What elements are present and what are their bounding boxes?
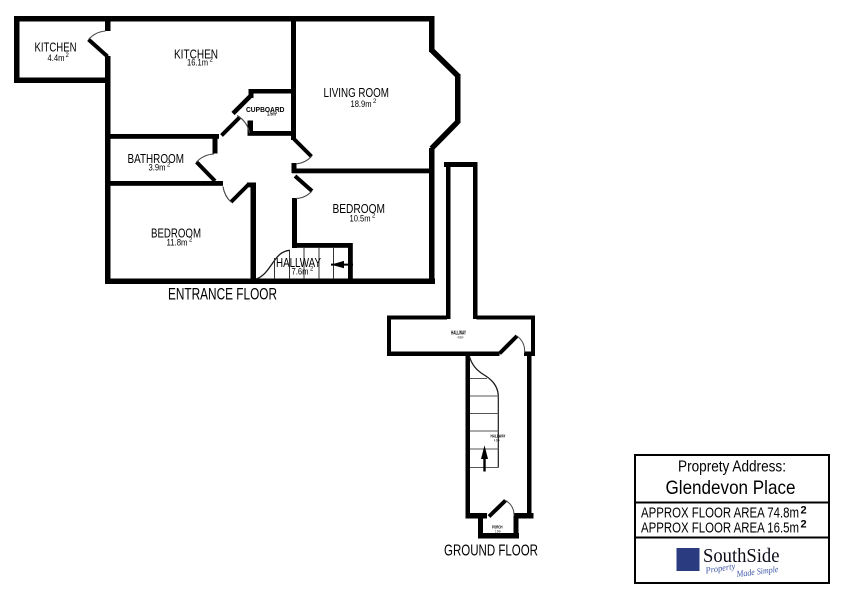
svg-text:Proprety Address:: Proprety Address:	[678, 459, 786, 476]
svg-text:4.6m²: 4.6m²	[494, 439, 501, 443]
svg-text:ENTRANCE FLOOR: ENTRANCE FLOOR	[168, 286, 277, 304]
svg-text:LIVING ROOM: LIVING ROOM	[324, 85, 390, 100]
svg-text:4.6m²: 4.6m²	[458, 336, 465, 340]
svg-text:Glendevon Place: Glendevon Place	[666, 477, 796, 499]
svg-text:2: 2	[801, 519, 807, 531]
svg-text:3.9m: 3.9m	[149, 163, 166, 174]
svg-text:16.1m: 16.1m	[187, 58, 208, 69]
svg-text:GROUND FLOOR: GROUND FLOOR	[444, 543, 538, 560]
svg-text:4.4m: 4.4m	[48, 53, 65, 64]
svg-text:7.6m: 7.6m	[292, 267, 309, 278]
svg-text:10.5m: 10.5m	[350, 214, 371, 225]
svg-text:APPROX FLOOR AREA 16.5m: APPROX FLOOR AREA 16.5m	[641, 519, 799, 536]
svg-text:18.9m: 18.9m	[351, 99, 372, 110]
svg-text:1.5m²: 1.5m²	[267, 112, 277, 118]
svg-text:11.8m: 11.8m	[167, 238, 188, 249]
svg-text:2: 2	[801, 505, 807, 517]
svg-text:1.6m²: 1.6m²	[495, 530, 502, 534]
svg-text:CUPBOARD: CUPBOARD	[246, 107, 285, 114]
